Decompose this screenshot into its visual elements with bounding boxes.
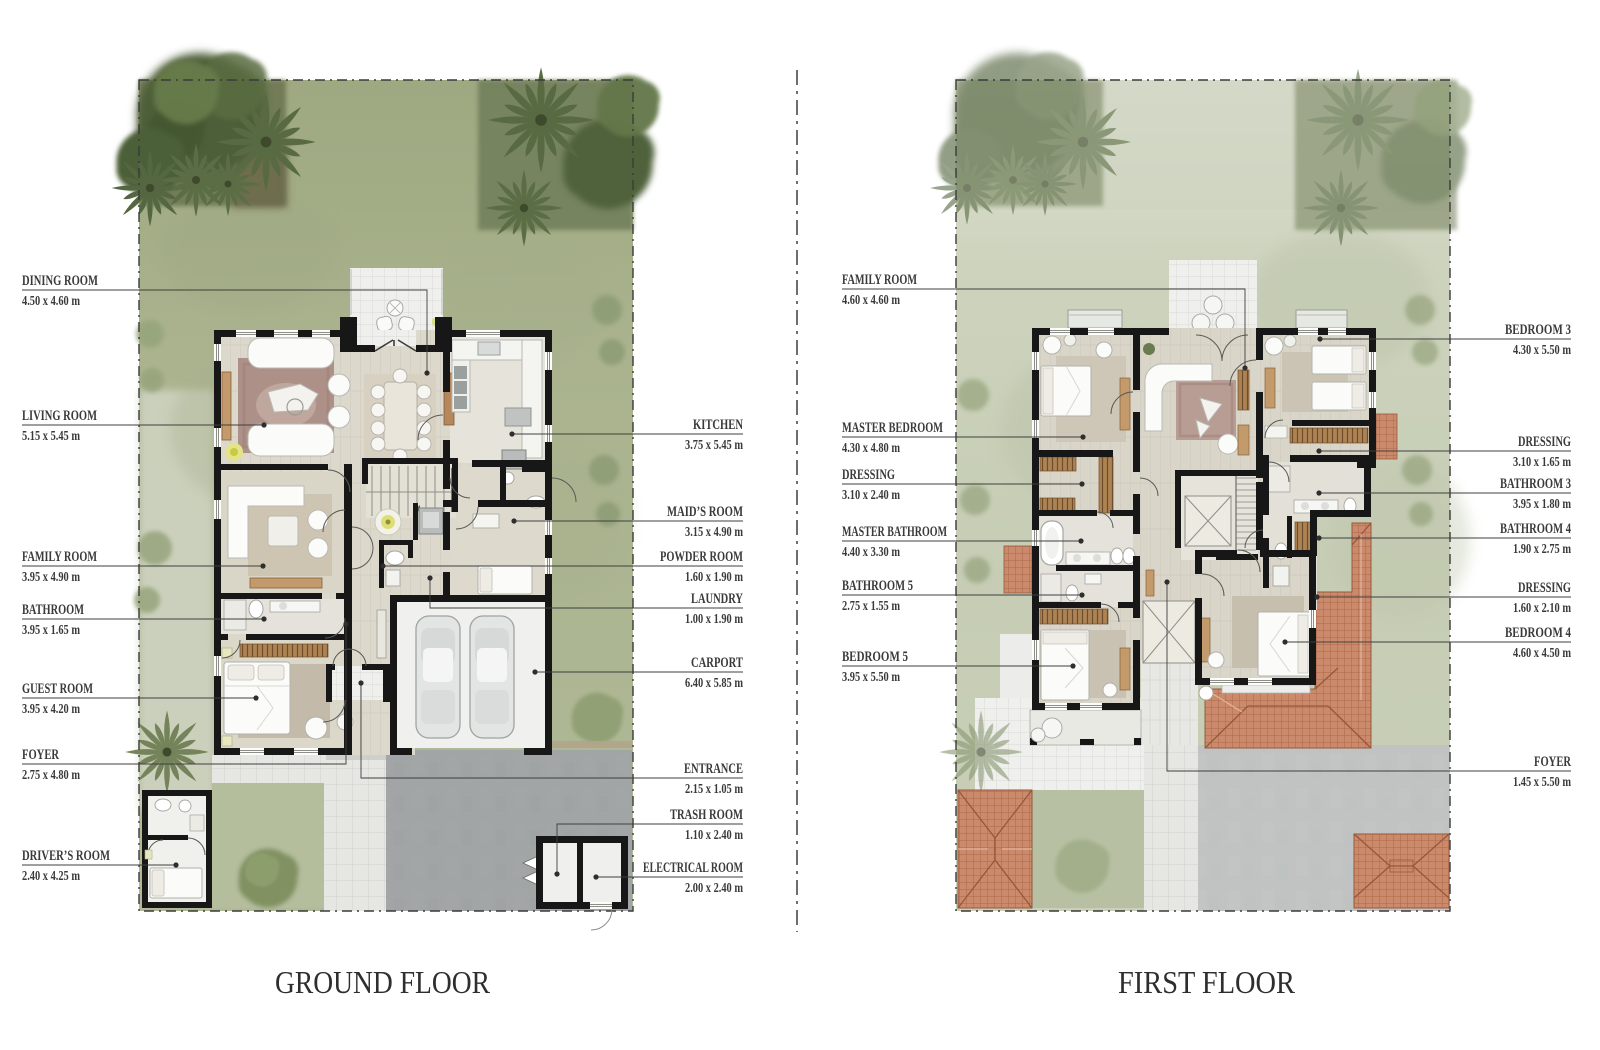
svg-text:LAUNDRY: LAUNDRY xyxy=(691,591,743,607)
svg-text:MASTER BATHROOM: MASTER BATHROOM xyxy=(842,524,947,540)
svg-text:4.60 x 4.60 m: 4.60 x 4.60 m xyxy=(842,292,901,307)
svg-text:BEDROOM 5: BEDROOM 5 xyxy=(842,649,908,665)
svg-text:DRIVER’S ROOM: DRIVER’S ROOM xyxy=(22,848,110,864)
svg-text:ENTRANCE: ENTRANCE xyxy=(684,761,743,777)
svg-text:KITCHEN: KITCHEN xyxy=(693,417,743,433)
svg-text:1.60 x 2.10 m: 1.60 x 2.10 m xyxy=(1513,600,1572,615)
svg-text:1.60 x 1.90 m: 1.60 x 1.90 m xyxy=(685,569,744,584)
svg-text:BATHROOM: BATHROOM xyxy=(22,602,84,618)
svg-text:2.75 x 1.55 m: 2.75 x 1.55 m xyxy=(842,598,901,613)
svg-text:BATHROOM 5: BATHROOM 5 xyxy=(842,578,913,594)
svg-text:POWDER ROOM: POWDER ROOM xyxy=(660,549,743,565)
svg-text:3.10 x 1.65 m: 3.10 x 1.65 m xyxy=(1513,454,1572,469)
svg-text:CARPORT: CARPORT xyxy=(691,655,743,671)
svg-text:3.10 x 2.40 m: 3.10 x 2.40 m xyxy=(842,487,901,502)
svg-text:6.40 x 5.85 m: 6.40 x 5.85 m xyxy=(685,675,744,690)
svg-text:3.95 x 5.50 m: 3.95 x 5.50 m xyxy=(842,669,901,684)
svg-text:3.95 x 4.90 m: 3.95 x 4.90 m xyxy=(22,569,81,584)
svg-text:FOYER: FOYER xyxy=(22,747,59,763)
svg-text:DRESSING: DRESSING xyxy=(842,467,895,483)
svg-text:1.90 x 2.75 m: 1.90 x 2.75 m xyxy=(1513,541,1572,556)
svg-text:2.75 x 4.80 m: 2.75 x 4.80 m xyxy=(22,767,81,782)
svg-text:TRASH ROOM: TRASH ROOM xyxy=(670,807,743,823)
svg-text:2.15 x 1.05 m: 2.15 x 1.05 m xyxy=(685,781,744,796)
svg-text:4.40 x 3.30 m: 4.40 x 3.30 m xyxy=(842,544,901,559)
svg-text:FAMILY ROOM: FAMILY ROOM xyxy=(842,272,917,288)
svg-text:3.75 x 5.45 m: 3.75 x 5.45 m xyxy=(685,437,744,452)
svg-text:1.45 x 5.50 m: 1.45 x 5.50 m xyxy=(1513,774,1572,789)
svg-text:MASTER BEDROOM: MASTER BEDROOM xyxy=(842,420,943,436)
svg-text:3.95 x 4.20 m: 3.95 x 4.20 m xyxy=(22,701,81,716)
svg-text:4.60 x 4.50 m: 4.60 x 4.50 m xyxy=(1513,645,1572,660)
svg-text:GUEST ROOM: GUEST ROOM xyxy=(22,681,93,697)
svg-text:2.40 x 4.25 m: 2.40 x 4.25 m xyxy=(22,868,81,883)
svg-text:DRESSING: DRESSING xyxy=(1518,434,1571,450)
svg-text:FAMILY ROOM: FAMILY ROOM xyxy=(22,549,97,565)
svg-text:GROUND FLOOR: GROUND FLOOR xyxy=(275,964,491,1000)
svg-text:MAID’S ROOM: MAID’S ROOM xyxy=(667,504,743,520)
svg-text:3.15 x 4.90 m: 3.15 x 4.90 m xyxy=(685,524,744,539)
svg-text:BEDROOM 4: BEDROOM 4 xyxy=(1505,625,1571,641)
svg-text:4.50 x 4.60 m: 4.50 x 4.60 m xyxy=(22,293,81,308)
svg-text:BEDROOM 3: BEDROOM 3 xyxy=(1505,322,1571,338)
svg-text:4.30 x 4.80 m: 4.30 x 4.80 m xyxy=(842,440,901,455)
svg-text:3.95 x 1.80 m: 3.95 x 1.80 m xyxy=(1513,496,1572,511)
svg-text:FIRST FLOOR: FIRST FLOOR xyxy=(1118,964,1296,1000)
svg-text:3.95 x 1.65 m: 3.95 x 1.65 m xyxy=(22,622,81,637)
svg-text:1.10 x 2.40 m: 1.10 x 2.40 m xyxy=(685,827,744,842)
svg-text:DINING ROOM: DINING ROOM xyxy=(22,273,98,289)
svg-text:2.00 x 2.40 m: 2.00 x 2.40 m xyxy=(685,880,744,895)
svg-text:FOYER: FOYER xyxy=(1534,754,1571,770)
svg-text:BATHROOM 4: BATHROOM 4 xyxy=(1500,521,1571,537)
svg-text:BATHROOM 3: BATHROOM 3 xyxy=(1500,476,1571,492)
svg-text:ELECTRICAL ROOM: ELECTRICAL ROOM xyxy=(643,860,743,876)
svg-text:1.00 x 1.90 m: 1.00 x 1.90 m xyxy=(685,611,744,626)
svg-text:4.30 x 5.50 m: 4.30 x 5.50 m xyxy=(1513,342,1572,357)
svg-text:DRESSING: DRESSING xyxy=(1518,580,1571,596)
svg-text:LIVING ROOM: LIVING ROOM xyxy=(22,408,97,424)
svg-text:5.15 x 5.45 m: 5.15 x 5.45 m xyxy=(22,428,81,443)
